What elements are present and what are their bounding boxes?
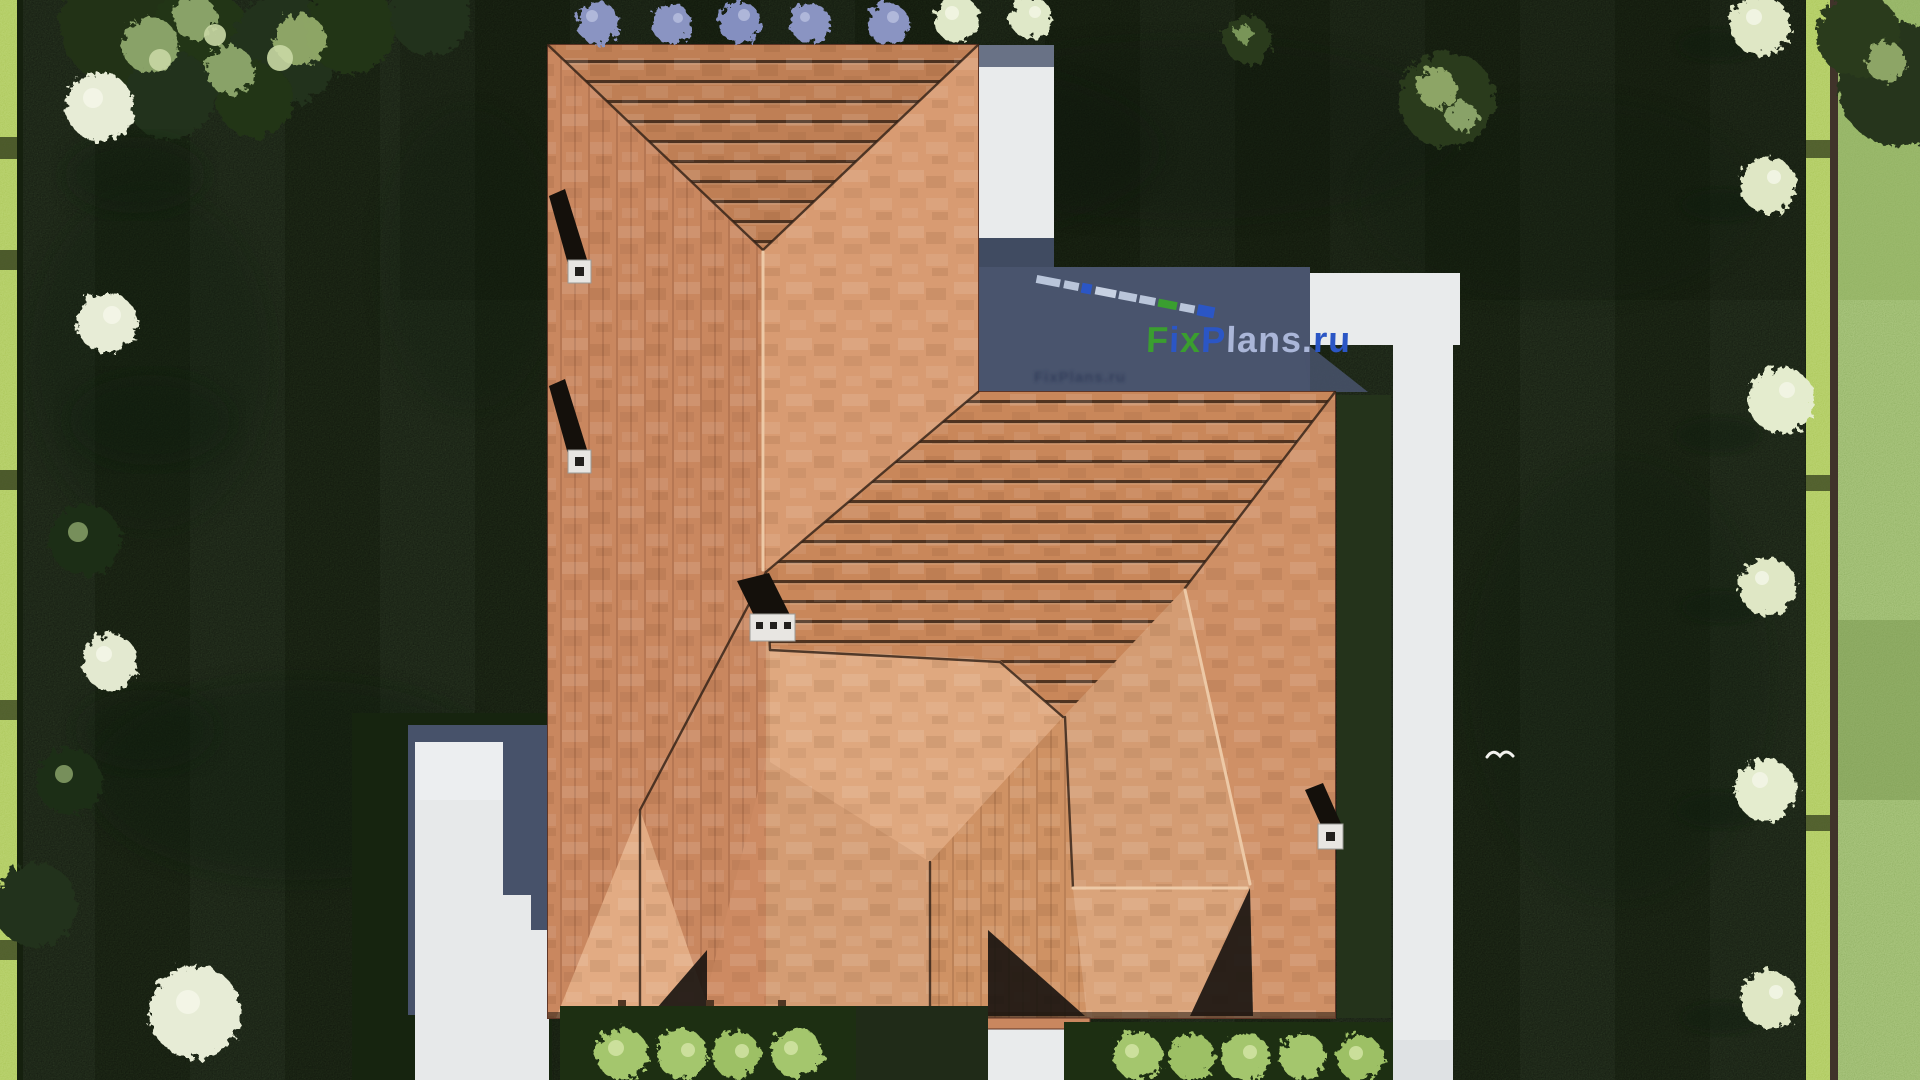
path-top-stub	[978, 45, 1054, 240]
lawn-strip-right-of-house	[1337, 395, 1391, 1018]
watermark-text: FixPlans.ru	[1145, 319, 1351, 360]
right-hedge	[1806, 0, 1830, 1080]
path-right-vertical	[1393, 300, 1453, 1080]
outer-meadow	[1836, 0, 1920, 1080]
driveway	[352, 713, 552, 1080]
aerial-house-render: FixPlans.ru FixPlans.ru FixPlans.ru	[0, 0, 1920, 1080]
watermark-faint-copy: FixPlans.ru	[1034, 369, 1126, 386]
render-canvas: FixPlans.ru FixPlans.ru FixPlans.ru	[0, 0, 1920, 1080]
